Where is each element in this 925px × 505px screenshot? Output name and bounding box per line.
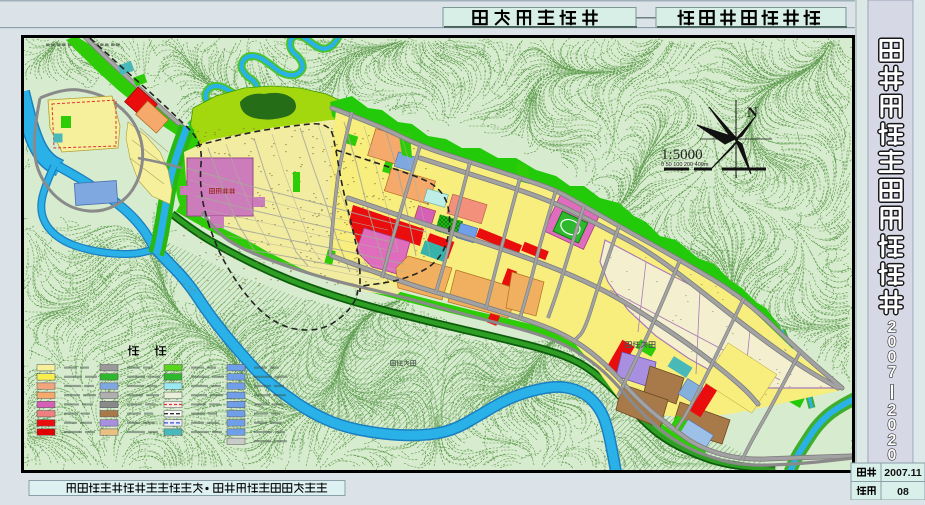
svg-text:N: N <box>747 105 758 121</box>
svg-text:1:5000: 1:5000 <box>661 147 703 163</box>
svg-text:0 50 100 200 400: 0 50 100 200 400m <box>661 162 709 168</box>
svg-text:7: 7 <box>888 364 897 381</box>
svg-text:08: 08 <box>897 486 909 498</box>
svg-text:2007.11: 2007.11 <box>884 467 922 479</box>
svg-text:|: | <box>890 383 894 400</box>
svg-text:0: 0 <box>888 447 897 464</box>
